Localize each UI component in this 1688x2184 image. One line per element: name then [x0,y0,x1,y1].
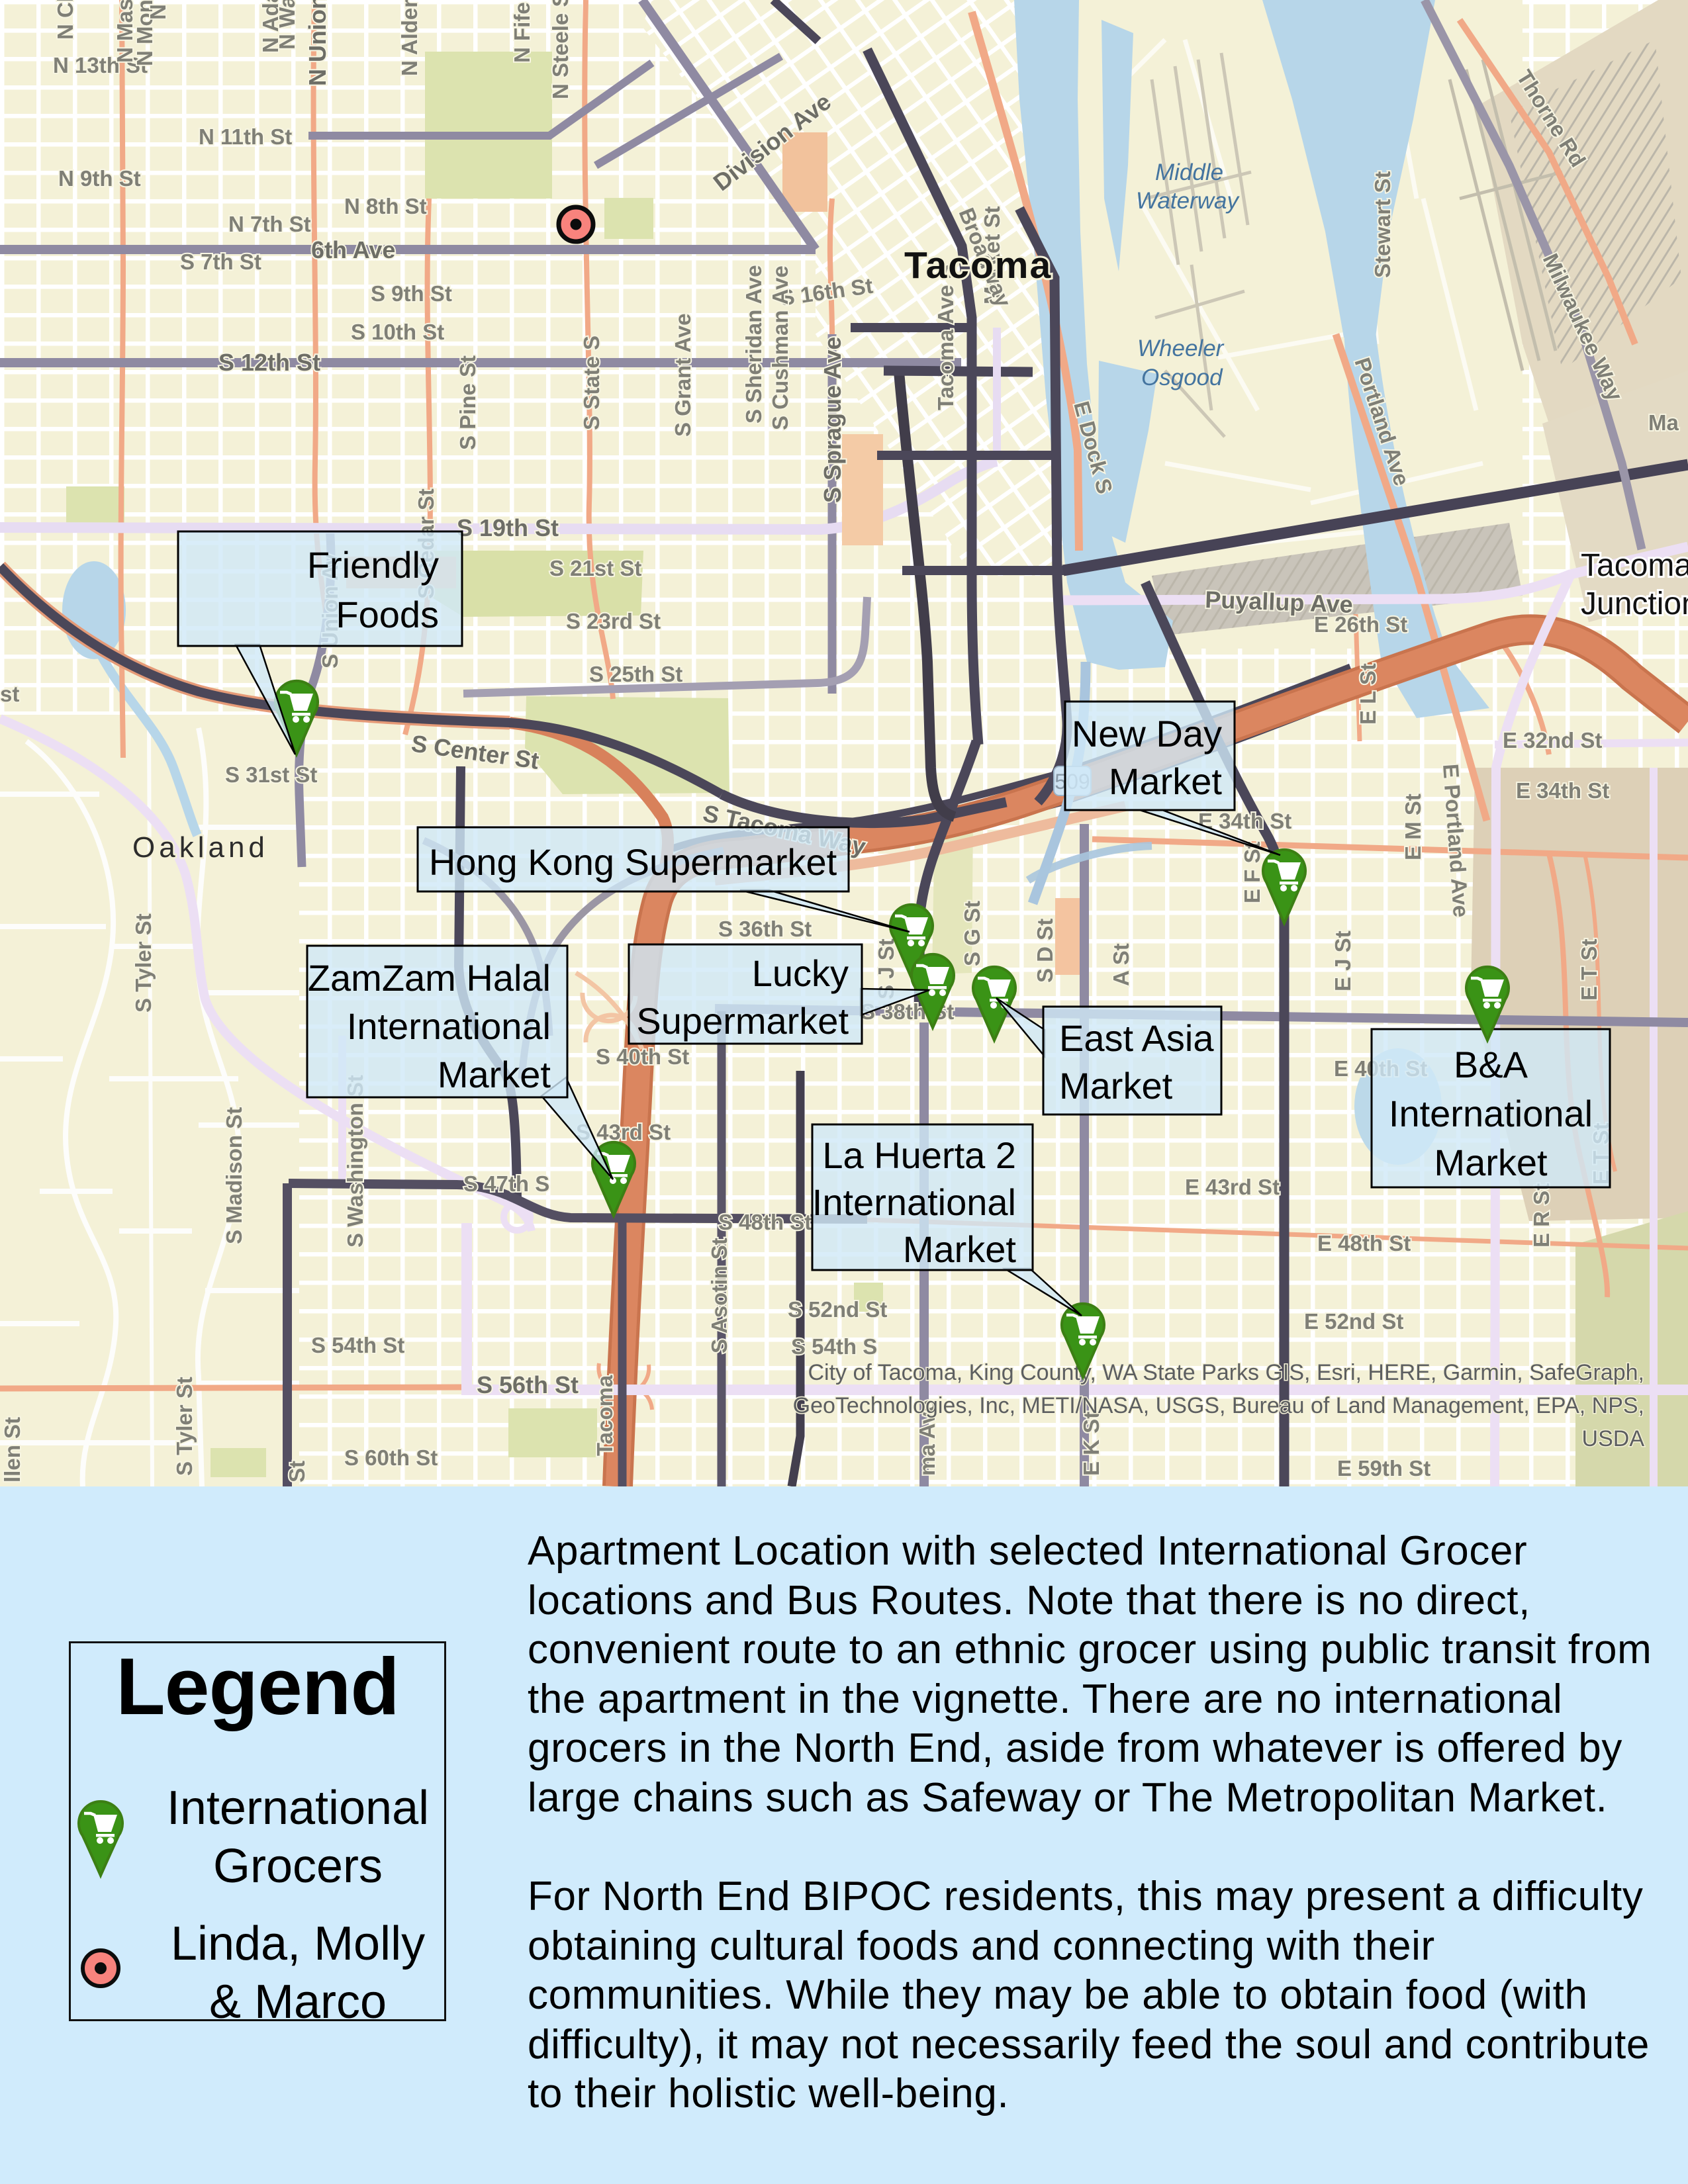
svg-text:Waterway: Waterway [1136,188,1240,214]
svg-text:International: International [1389,1093,1593,1134]
svg-text:S D St: S D St [1033,919,1057,983]
svg-text:S G St: S G St [960,901,984,966]
svg-text:S 21st St: S 21st St [549,556,641,580]
svg-text:S Cushman Ave: S Cushman Ave [768,265,792,430]
svg-text:N Steele St: N Steele St [548,0,573,99]
svg-text:llen St: llen St [0,1417,24,1482]
svg-text:S Pine St: S Pine St [455,355,480,450]
svg-text:S 47th S: S 47th S [463,1171,549,1196]
svg-text:N 7th St: N 7th St [228,212,311,236]
svg-text:6th Ave: 6th Ave [311,236,395,263]
svg-text:E R St: E R St [1529,1183,1554,1248]
svg-text:S 40th St: S 40th St [596,1044,689,1069]
svg-text:N Alder: N Alder [397,0,422,76]
svg-text:S Tyler St: S Tyler St [172,1377,197,1476]
svg-text:Market: Market [903,1228,1017,1270]
svg-text:N 9th St: N 9th St [58,166,141,191]
svg-text:S 54th S: S 54th S [791,1334,877,1359]
svg-text:Tacoma: Tacoma [904,244,1052,287]
svg-text:S 36th St: S 36th St [718,917,812,941]
svg-text:E M St: E M St [1401,794,1425,860]
svg-text:N Fife St: N Fife St [510,0,534,63]
svg-text:City of Tacoma, King County, W: City of Tacoma, King County, WA State Pa… [808,1360,1645,1385]
svg-text:E 52nd St: E 52nd St [1304,1309,1403,1334]
svg-text:B&A: B&A [1454,1044,1528,1085]
svg-text:S 60th St: S 60th St [344,1445,438,1470]
svg-text:Supermarket: Supermarket [636,1000,849,1042]
svg-text:E T St: E T St [1577,938,1601,1001]
svg-text:N 8th St: N 8th St [344,194,427,218]
svg-text:Middle: Middle [1155,159,1223,185]
svg-text:Oakland: Oakland [132,831,269,864]
svg-text:S 25th St: S 25th St [589,662,682,686]
svg-text:N S: N S [146,0,170,20]
svg-text:Tacoma: Tacoma [592,1375,617,1456]
svg-text:Wheeler: Wheeler [1137,336,1225,361]
svg-text:S 48th St: S 48th St [718,1210,812,1234]
svg-text:S Asotin St: S Asotin St [707,1238,731,1353]
svg-text:S Madison St: S Madison St [222,1107,246,1244]
svg-text:Market: Market [1059,1065,1173,1107]
svg-text:S 10th St: S 10th St [351,320,444,344]
svg-text:S State S: S State S [579,336,604,430]
svg-text:S 54th St: S 54th St [311,1333,404,1357]
svg-text:Market: Market [1434,1142,1548,1183]
svg-text:E F St: E F St [1240,841,1264,903]
svg-text:Junction: Junction [1581,586,1688,621]
svg-text:N Ch: N Ch [53,0,77,40]
svg-text:S 52nd St: S 52nd St [788,1297,887,1322]
svg-text:S 19th St: S 19th St [457,514,559,541]
svg-text:International: International [812,1181,1016,1223]
svg-text:Stewart St: Stewart St [1370,171,1395,278]
svg-text:E L St: E L St [1356,663,1380,725]
svg-text:S Washington St: S Washington St [343,1075,367,1248]
svg-text:GeoTechnologies, Inc, METI/NAS: GeoTechnologies, Inc, METI/NASA, USGS, B… [793,1393,1644,1418]
svg-text:Market: Market [438,1054,551,1095]
svg-text:S Sheridan Ave: S Sheridan Ave [741,265,766,424]
svg-text:E 32nd St: E 32nd St [1503,728,1602,752]
svg-text:International: International [347,1005,551,1047]
svg-text:E 34th St: E 34th St [1516,778,1609,803]
svg-text:N Was: N Was [275,0,299,50]
svg-text:East Asia: East Asia [1059,1017,1214,1059]
svg-text:Puyallup Ave: Puyallup Ave [1205,586,1354,618]
svg-text:S Grant Ave: S Grant Ave [671,314,695,437]
svg-text:New Day: New Day [1072,713,1222,754]
svg-text:S 9th St: S 9th St [371,281,452,306]
svg-text:Friendly: Friendly [307,544,439,586]
svg-text:Market: Market [1109,760,1223,802]
svg-text:S Tyler St: S Tyler St [131,913,156,1013]
svg-text:A St: A St [1109,943,1133,986]
svg-text:E 48th St: E 48th St [1317,1231,1411,1255]
svg-text:E J St: E J St [1331,931,1355,991]
svg-text:N Union: N Union [304,0,331,86]
svg-text:St: St [285,1461,309,1482]
svg-text:E K St: E K St [1079,1412,1103,1476]
svg-text:USDA: USDA [1582,1426,1645,1451]
svg-text:S 56th St: S 56th St [477,1371,579,1398]
svg-text:Ma: Ma [1648,410,1679,435]
svg-text:Osgood: Osgood [1141,365,1223,390]
svg-text:S Sprague Ave: S Sprague Ave [819,337,846,503]
svg-text:Hong Kong Supermarket: Hong Kong Supermarket [429,841,837,883]
svg-text:Lucky: Lucky [752,952,849,994]
svg-text:S 23rd St: S 23rd St [566,609,661,633]
svg-text:N 11th St: N 11th St [199,124,292,149]
svg-text:Tacoma: Tacoma [1581,548,1688,583]
svg-text:E 43rd St: E 43rd St [1185,1175,1280,1199]
svg-text:S 7th St: S 7th St [180,250,261,274]
svg-text:st: st [0,682,19,706]
svg-text:E 59th St: E 59th St [1337,1456,1430,1480]
svg-text:S 12th St: S 12th St [218,349,320,376]
svg-text:La Huerta 2: La Huerta 2 [822,1134,1016,1176]
svg-text:S 31st St: S 31st St [225,762,317,787]
svg-text:ZamZam Halal: ZamZam Halal [308,957,551,999]
svg-text:Foods: Foods [336,594,439,635]
